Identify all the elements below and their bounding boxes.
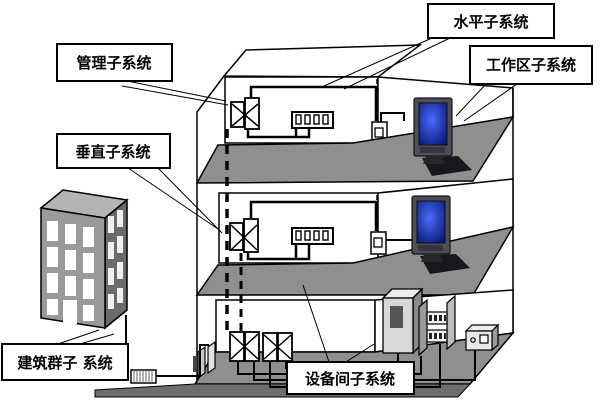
label-campus-text: 建筑群子 系统 bbox=[17, 354, 112, 372]
roof bbox=[224, 45, 420, 77]
label-vertical-text: 垂直子系统 bbox=[75, 143, 150, 161]
campus-leader bbox=[58, 330, 114, 344]
cross-connect-floor2 bbox=[230, 219, 258, 252]
monitor-screen bbox=[419, 103, 447, 145]
patch-panel-floor1 bbox=[292, 112, 333, 128]
label-horizontal-text: 水平子系统 bbox=[453, 13, 528, 31]
cabling-system-diagram: 水平子系统 管理子系统 工作区子系统 垂直子系统 建筑群子 系统 设备间子系统 bbox=[0, 0, 600, 400]
monitor-stand bbox=[423, 156, 445, 164]
label-equipment-room-text: 设备间子系统 bbox=[305, 370, 395, 388]
main-building bbox=[95, 45, 513, 397]
server-cabinet-icon bbox=[383, 289, 422, 353]
cable-splice bbox=[131, 370, 156, 383]
cross-connect-pair-b bbox=[263, 333, 292, 361]
diagram-canvas: 水平子系统 管理子系统 工作区子系统 垂直子系统 建筑群子 系统 设备间子系统 bbox=[0, 0, 600, 400]
label-management-text: 管理子系统 bbox=[76, 54, 151, 72]
label-campus-subsystem: 建筑群子 系统 bbox=[2, 344, 128, 380]
monitor-controls bbox=[420, 147, 445, 153]
label-horizontal-subsystem: 水平子系统 bbox=[428, 4, 554, 38]
cross-connect-pair-a bbox=[230, 332, 259, 361]
label-vertical-subsystem: 垂直子系统 bbox=[57, 134, 170, 168]
cross-connect-floor1 bbox=[231, 98, 259, 129]
network-device-icon bbox=[466, 325, 498, 350]
monitor-screen bbox=[417, 201, 445, 243]
patch-panel-floor2 bbox=[292, 228, 333, 244]
wall-outlet-floor2 bbox=[371, 232, 386, 254]
monitor-controls bbox=[418, 245, 443, 251]
label-workarea-text: 工作区子系统 bbox=[486, 56, 576, 74]
label-equipment-room-subsystem: 设备间子系统 bbox=[287, 362, 414, 394]
label-workarea-subsystem: 工作区子系统 bbox=[470, 46, 592, 84]
floor-2 bbox=[197, 179, 513, 295]
label-management-subsystem: 管理子系统 bbox=[57, 44, 172, 81]
monitor-stand bbox=[421, 254, 443, 262]
